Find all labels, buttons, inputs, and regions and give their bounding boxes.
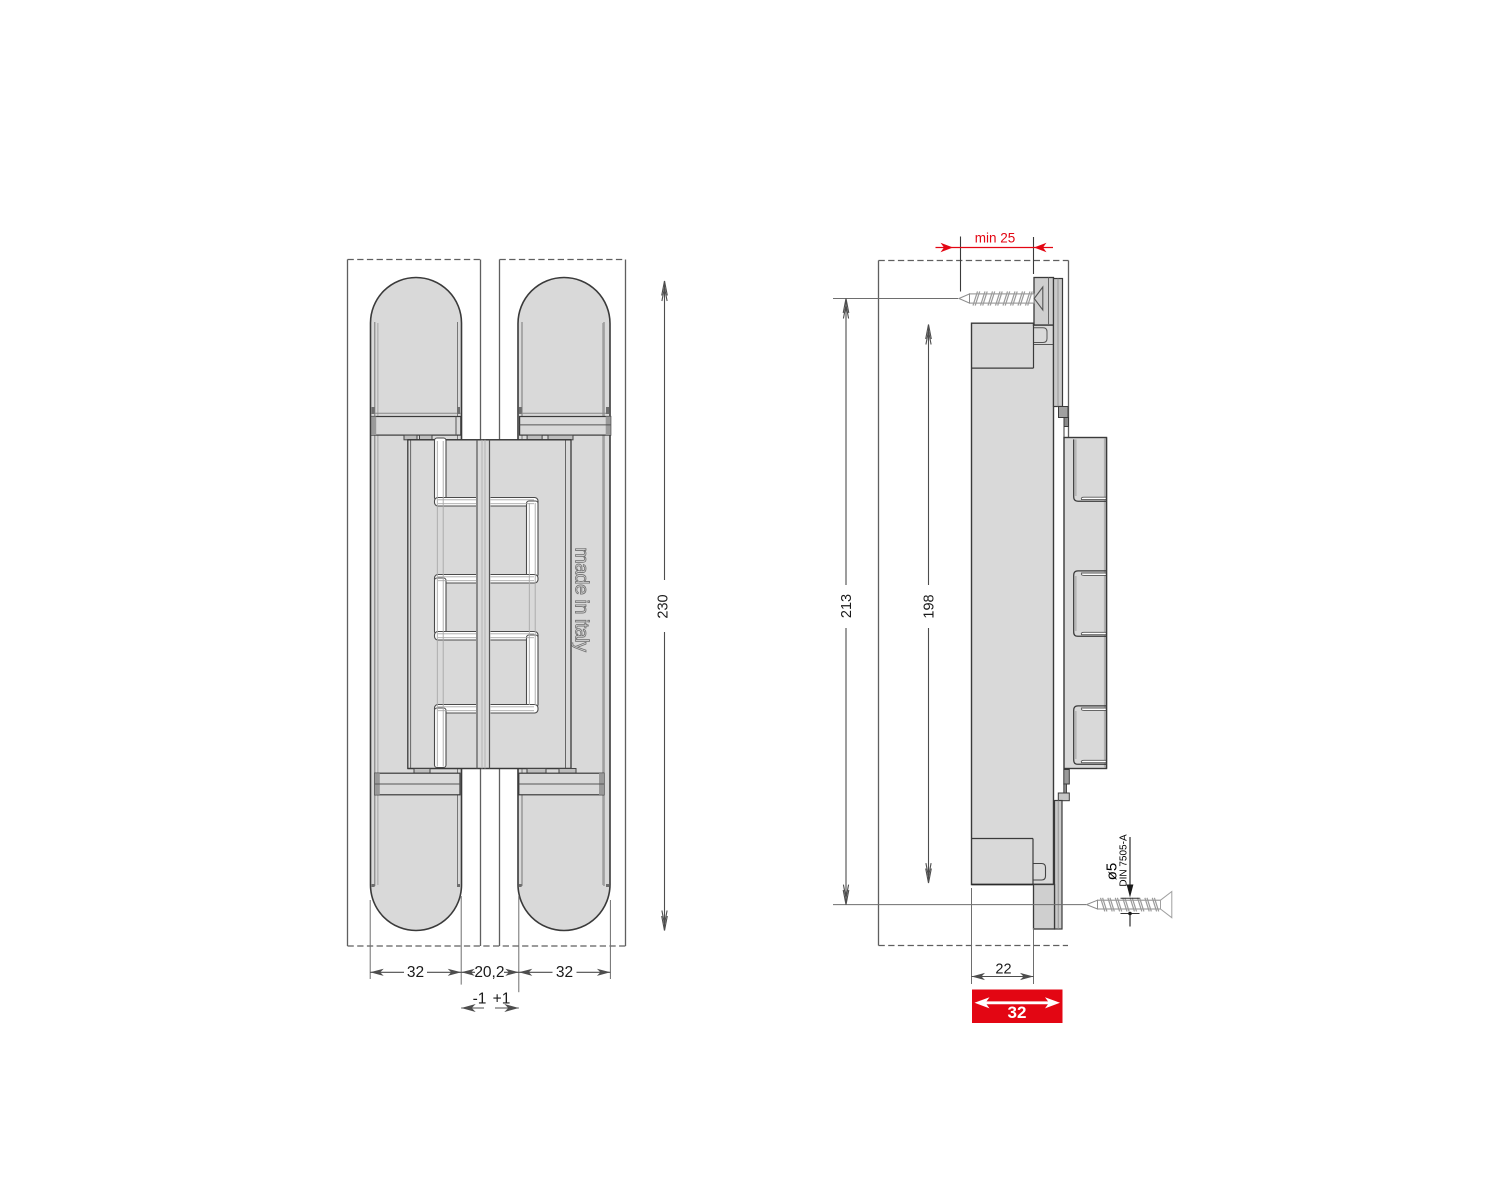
svg-text:198: 198 — [922, 594, 938, 618]
svg-text:20,2: 20,2 — [474, 964, 504, 981]
svg-text:32: 32 — [556, 964, 573, 981]
svg-text:213: 213 — [839, 594, 855, 618]
svg-text:32: 32 — [407, 964, 424, 981]
svg-text:-1: -1 — [473, 991, 487, 1008]
svg-text:DIN 7505-A: DIN 7505-A — [1119, 834, 1130, 887]
svg-text:230: 230 — [656, 594, 672, 618]
svg-text:min 25: min 25 — [975, 231, 1016, 246]
svg-text:made in italy: made in italy — [571, 547, 593, 652]
svg-text:22: 22 — [995, 962, 1011, 978]
svg-text:+1: +1 — [493, 991, 511, 1008]
svg-text:32: 32 — [1008, 1003, 1027, 1022]
